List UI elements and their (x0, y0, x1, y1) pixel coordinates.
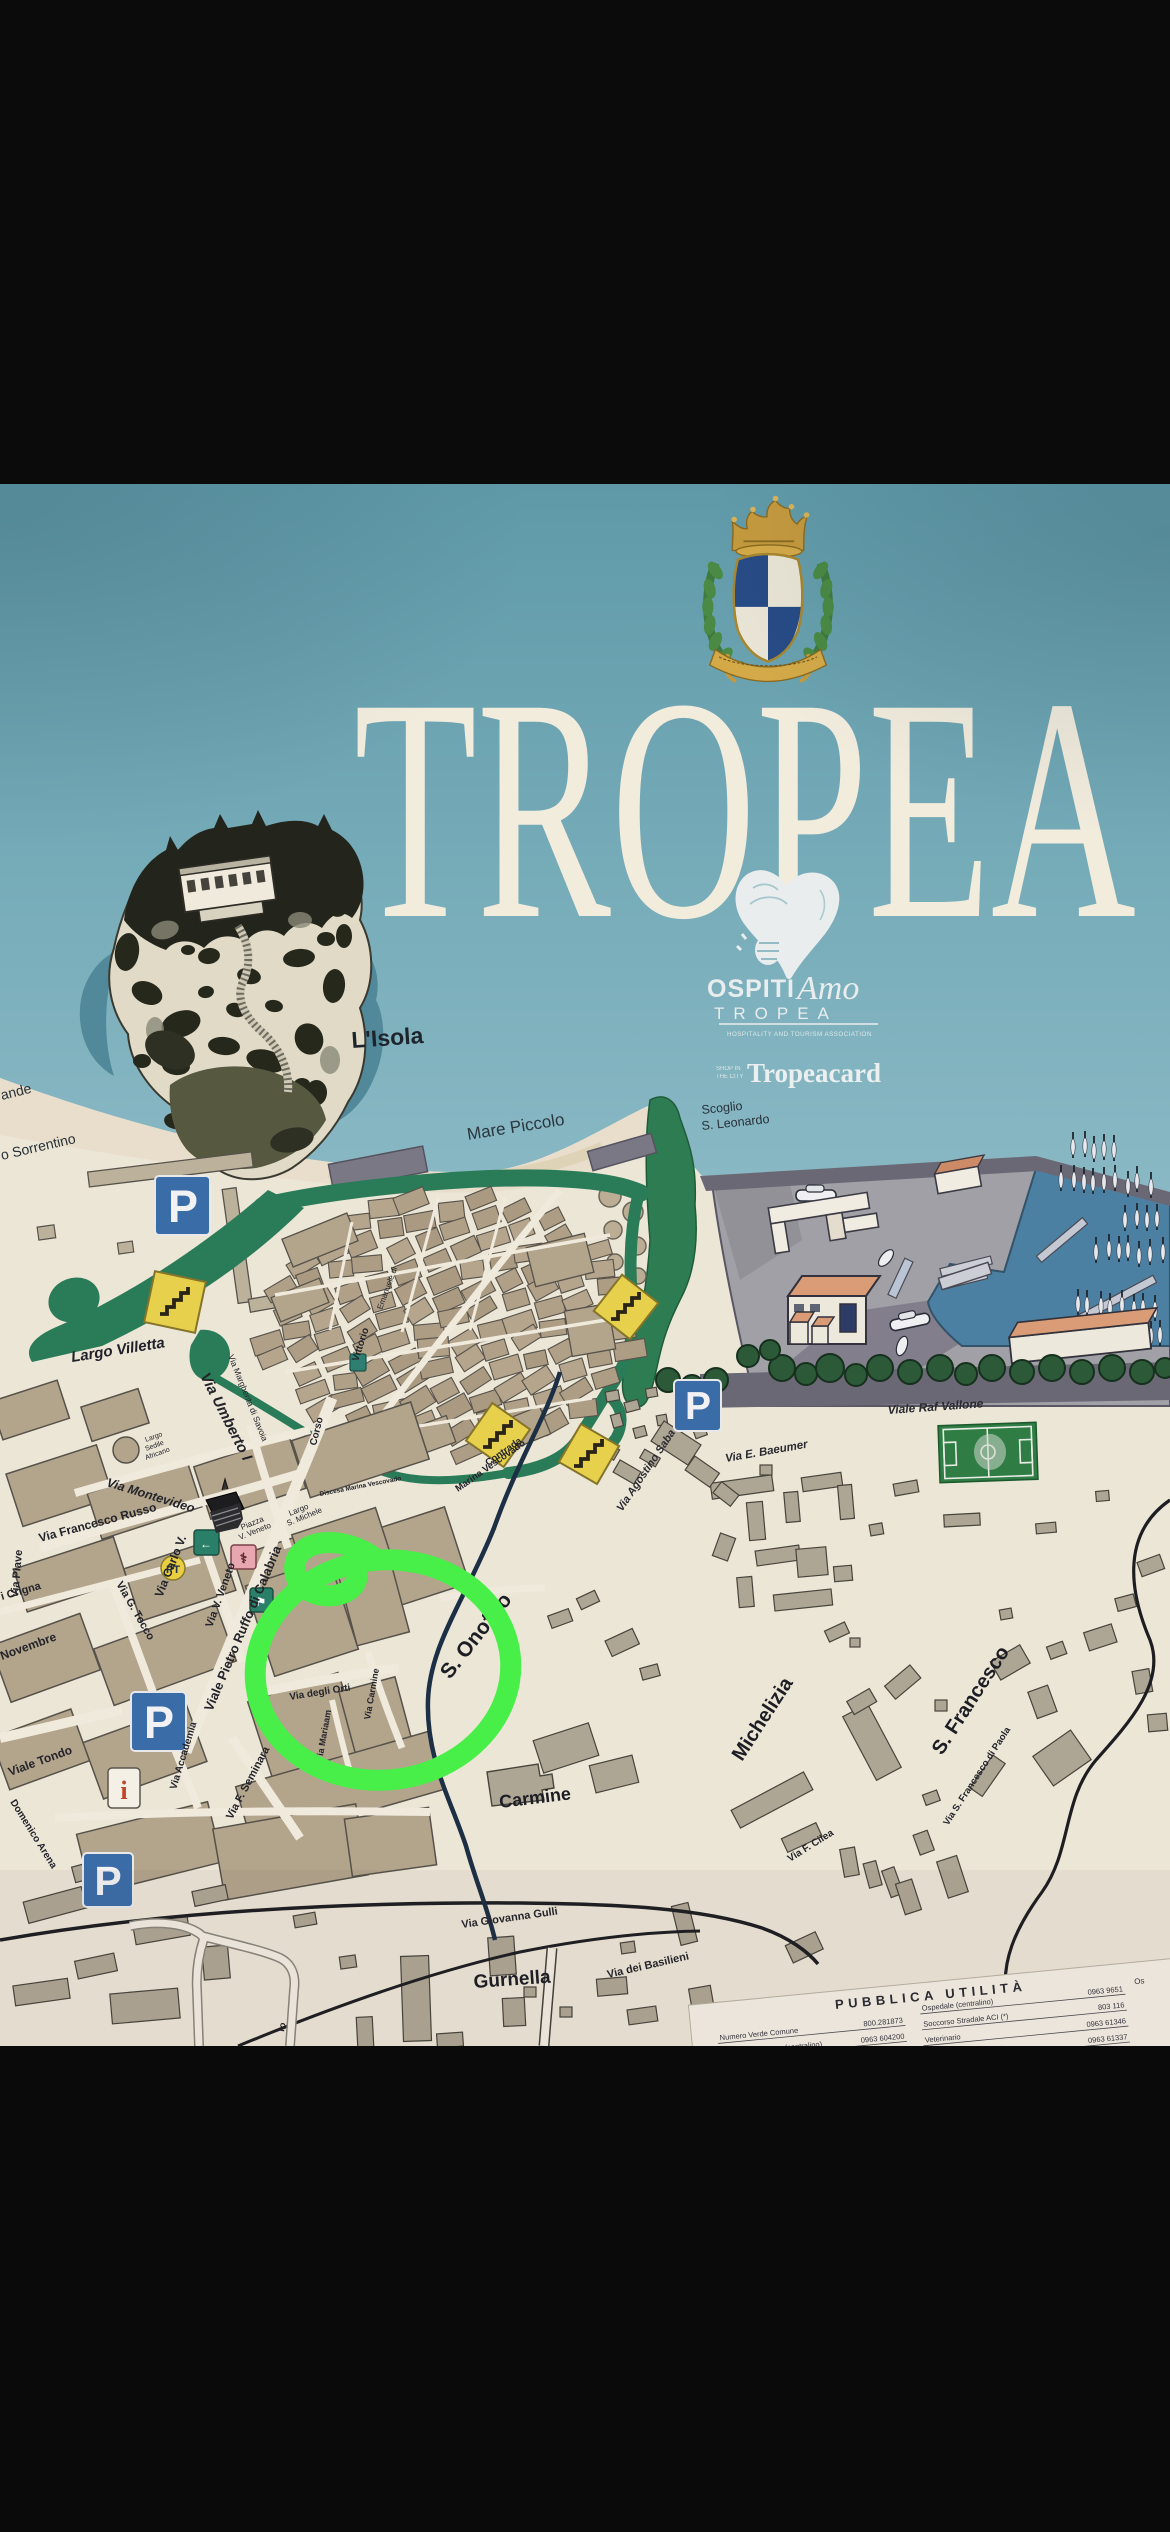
svg-text:THE CITY: THE CITY (716, 1074, 743, 1080)
svg-text:TROPEA: TROPEA (714, 1004, 838, 1023)
svg-text:⚕: ⚕ (240, 1550, 248, 1566)
svg-text:i: i (120, 1776, 127, 1805)
svg-text:Amo: Amo (795, 970, 859, 1007)
svg-text:P: P (144, 1697, 174, 1748)
svg-text:←: ← (200, 1537, 212, 1551)
svg-text:SHOP IN: SHOP IN (716, 1066, 741, 1072)
svg-text:P: P (685, 1385, 711, 1428)
svg-text:HOSPITALITY AND TOURISM ASSOCI: HOSPITALITY AND TOURISM ASSOCIATION (727, 1031, 872, 1038)
svg-text:Tropeacard: Tropeacard (747, 1058, 881, 1088)
svg-text:L'Isola: L'Isola (351, 1022, 425, 1053)
svg-text:OSPITI: OSPITI (707, 975, 795, 1003)
svg-text:P: P (168, 1181, 198, 1232)
